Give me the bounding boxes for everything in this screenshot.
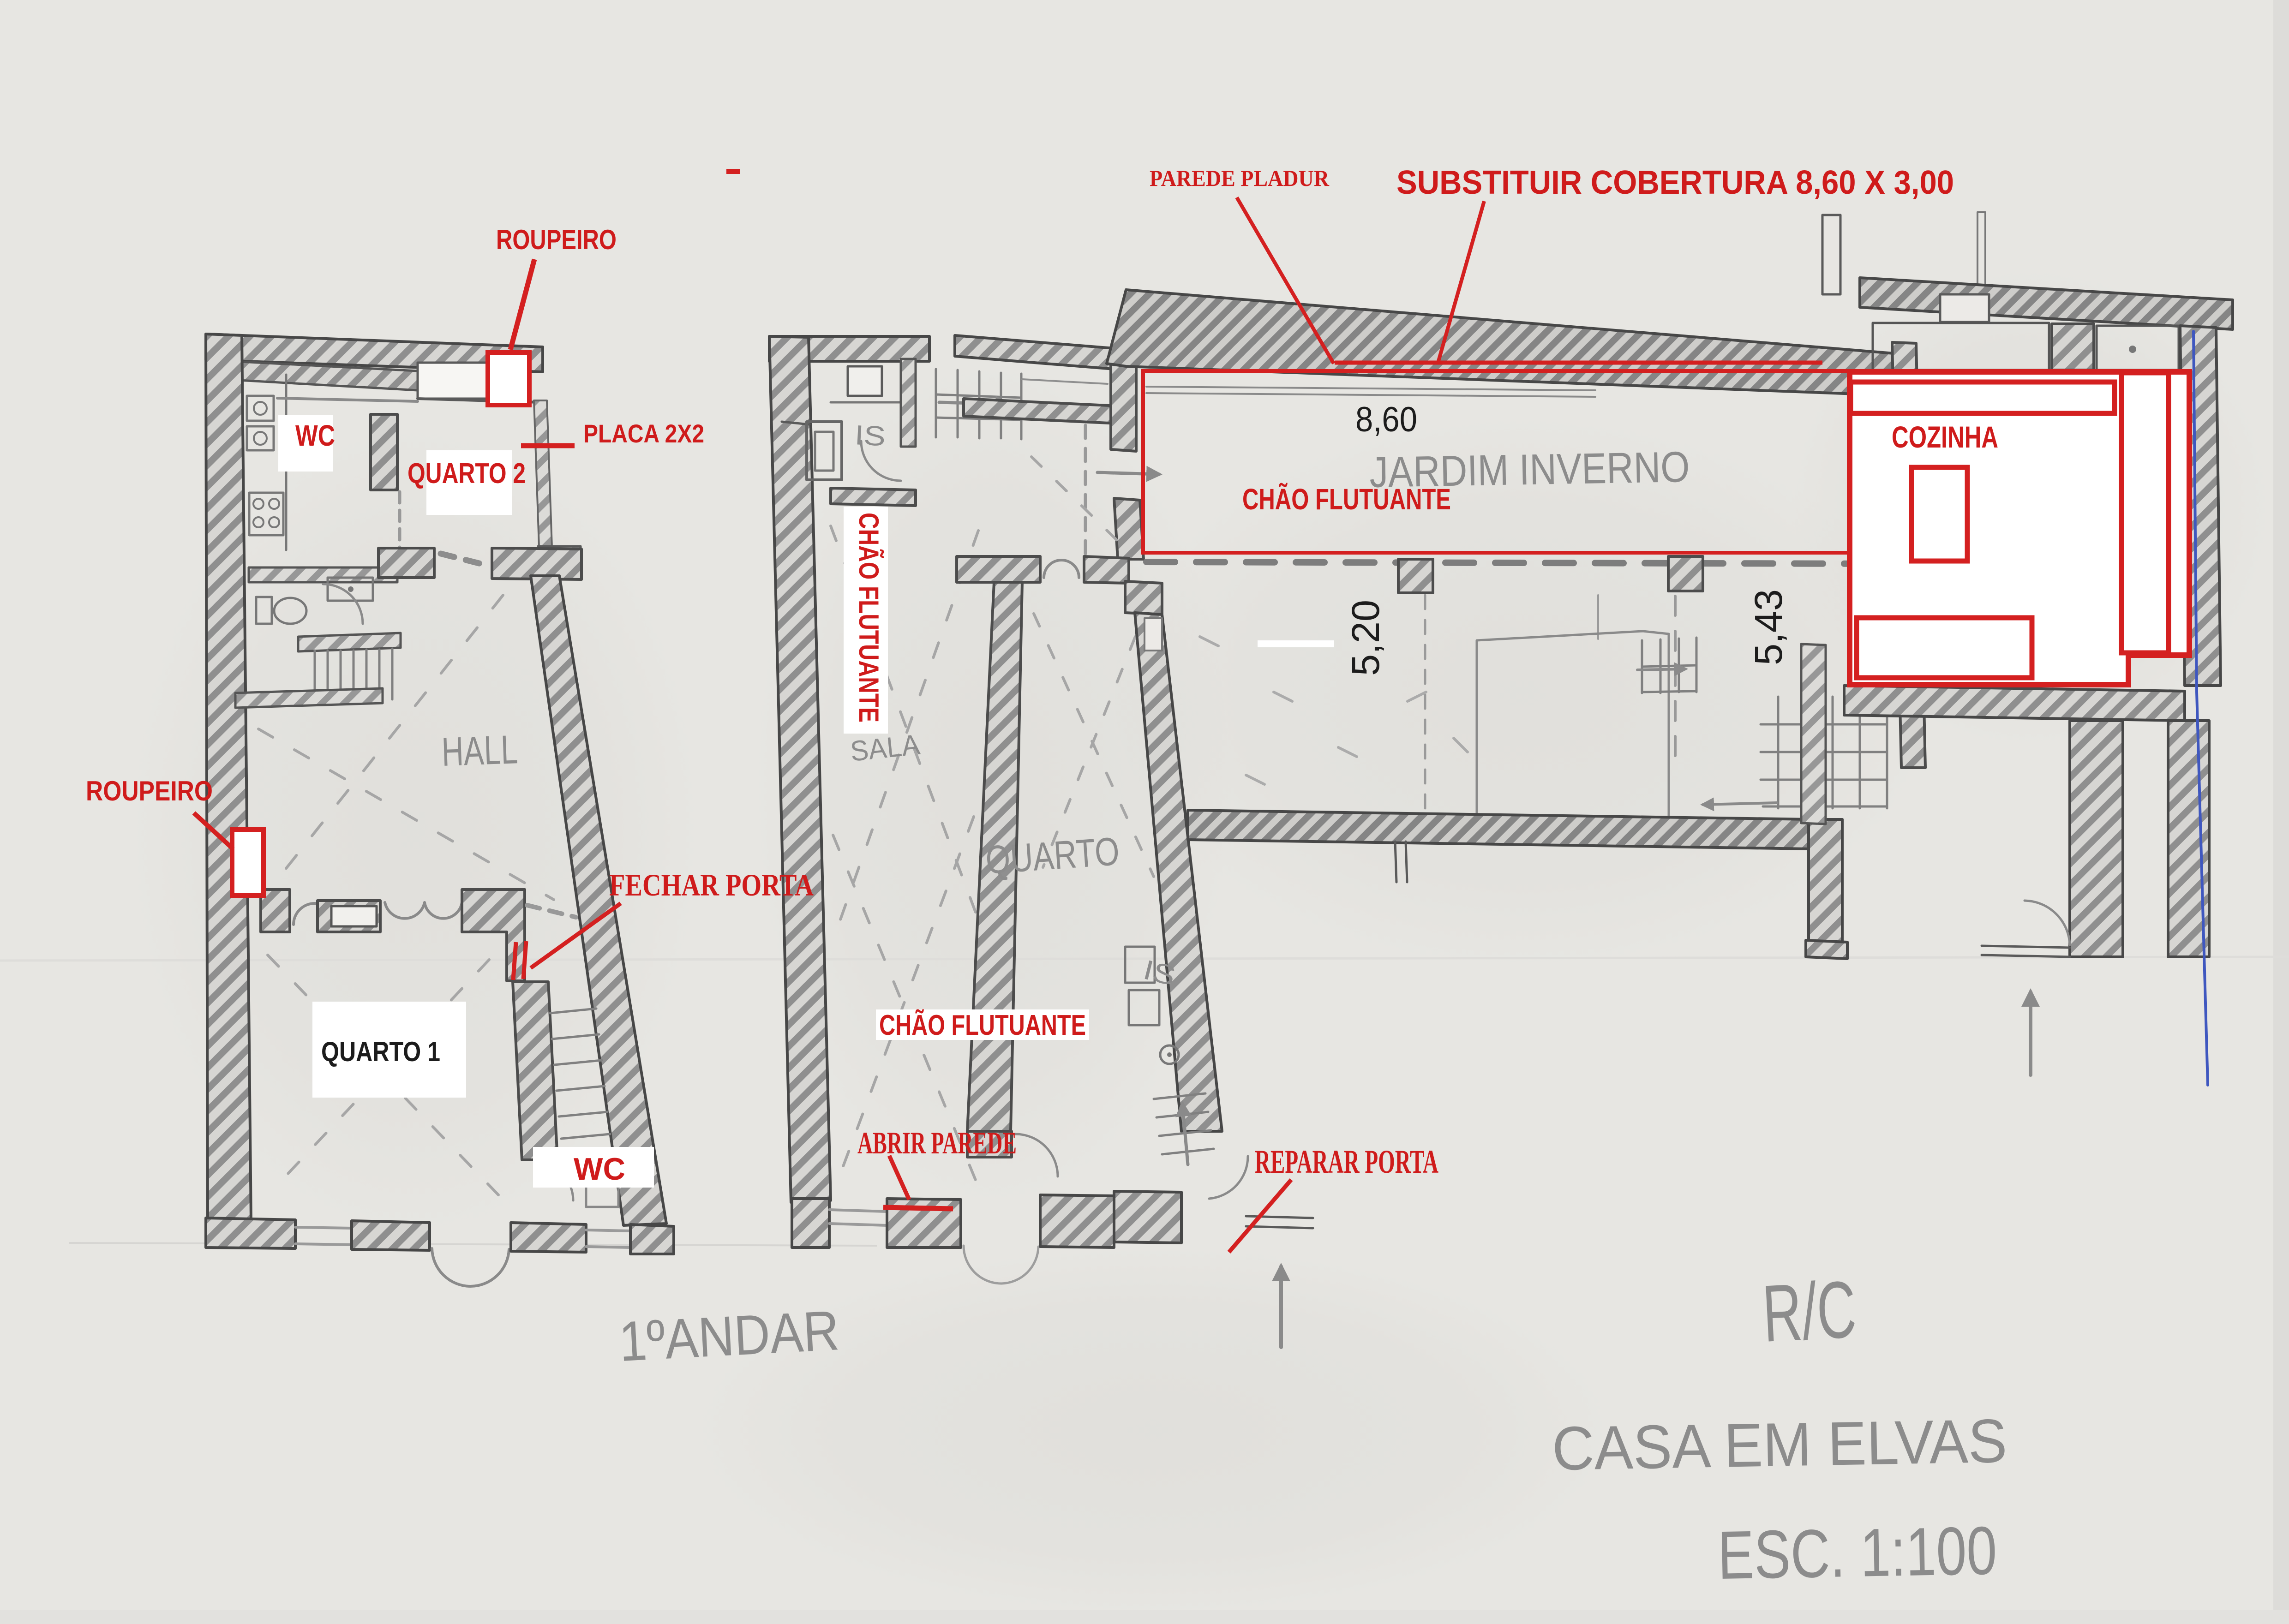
svg-text:1ºANDAR: 1ºANDAR	[617, 1299, 840, 1373]
svg-text:CHÃO FLUTUANTE: CHÃO FLUTUANTE	[1242, 483, 1451, 516]
svg-text:R/C: R/C	[1761, 1265, 1858, 1359]
svg-text:HALL: HALL	[441, 726, 518, 775]
svg-text:QUARTO 1: QUARTO 1	[321, 1036, 440, 1067]
svg-text:5,43: 5,43	[1747, 589, 1790, 665]
svg-text:WC: WC	[574, 1152, 625, 1187]
svg-text:QUARTO 2: QUARTO 2	[407, 458, 526, 490]
svg-text:WC: WC	[295, 419, 335, 452]
svg-text:ROUPEIRO: ROUPEIRO	[496, 224, 617, 255]
svg-text:FECHAR PORTA: FECHAR PORTA	[609, 867, 814, 902]
svg-text:QUARTO: QUARTO	[984, 829, 1121, 883]
svg-text:8,60: 8,60	[1355, 400, 1417, 439]
svg-text:ROUPEIRO: ROUPEIRO	[86, 776, 213, 806]
svg-text:REPARAR PORTA: REPARAR PORTA	[1255, 1143, 1438, 1180]
svg-text:CHÃO FLUTUANTE: CHÃO FLUTUANTE	[879, 1009, 1086, 1041]
svg-text:PLACA 2X2: PLACA 2X2	[583, 419, 704, 448]
svg-text:COZINHA: COZINHA	[1892, 420, 1998, 454]
svg-text:IS: IS	[854, 419, 886, 452]
svg-text:PAREDE PLADUR: PAREDE PLADUR	[1150, 165, 1330, 191]
svg-text:5,20: 5,20	[1344, 600, 1387, 676]
svg-text:CHÃO FLUTUANTE: CHÃO FLUTUANTE	[853, 513, 884, 722]
svg-text:ABRIR PAREDE: ABRIR PAREDE	[857, 1125, 1017, 1160]
svg-text:SUBSTITUIR COBERTURA 8,60 X 3,: SUBSTITUIR COBERTURA 8,60 X 3,00	[1396, 164, 1954, 201]
svg-text:ESC. 1:100: ESC. 1:100	[1717, 1512, 1998, 1594]
svg-text:CASA EM ELVAS: CASA EM ELVAS	[1552, 1407, 2007, 1483]
